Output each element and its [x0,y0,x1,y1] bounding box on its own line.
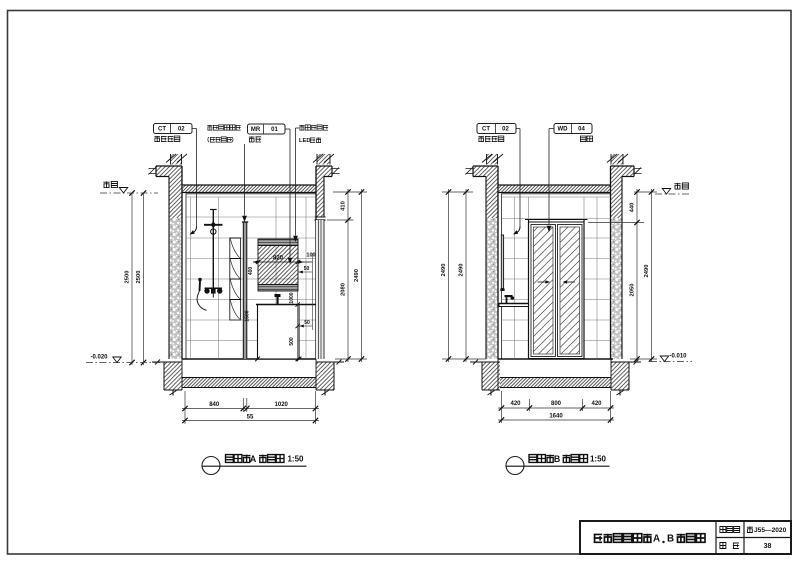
svg-text:2500: 2500 [136,271,142,284]
svg-text:WD: WD [558,127,569,133]
svg-text:2490: 2490 [459,264,465,277]
svg-text:1000: 1000 [289,292,295,303]
svg-text:2500: 2500 [125,271,131,284]
svg-text:400: 400 [248,267,254,276]
svg-text:1500: 1500 [244,310,250,321]
svg-text:2050: 2050 [630,284,636,297]
svg-text:38: 38 [764,543,772,550]
svg-text:100: 100 [306,253,315,259]
svg-text:A: A [653,534,660,545]
svg-text:2490: 2490 [441,264,447,277]
svg-text:500: 500 [289,337,295,346]
svg-text:J55—2020: J55—2020 [754,527,787,534]
svg-text:LED: LED [299,138,311,144]
svg-text:1:50: 1:50 [590,455,607,464]
svg-text:1020: 1020 [275,402,289,408]
svg-text:04: 04 [578,127,585,133]
svg-text:2490: 2490 [354,269,360,282]
svg-text:1640: 1640 [549,414,563,420]
svg-text:CT: CT [158,127,166,133]
svg-text:50: 50 [304,266,310,272]
svg-text:420: 420 [591,401,602,407]
svg-text:A: A [250,454,257,464]
svg-text:55: 55 [247,415,254,421]
svg-text:B: B [667,534,674,545]
svg-text:2490: 2490 [644,265,650,278]
svg-text:50: 50 [304,320,310,326]
svg-text:B: B [554,454,560,464]
svg-text:420: 420 [510,401,521,407]
svg-text:840: 840 [209,402,220,408]
svg-text:02: 02 [178,127,185,133]
svg-text:410: 410 [341,201,347,211]
svg-text:-0.010: -0.010 [669,354,687,360]
svg-text:01: 01 [271,127,278,133]
svg-text:CT: CT [482,127,490,133]
svg-text:MR: MR [251,127,261,133]
svg-text:440: 440 [630,203,636,213]
svg-text:1:50: 1:50 [287,455,304,464]
svg-text:02: 02 [502,127,509,133]
svg-text:-0.020: -0.020 [90,355,108,361]
svg-text:800: 800 [551,401,562,407]
svg-text:2080: 2080 [341,283,347,296]
svg-text:820: 820 [273,256,284,262]
